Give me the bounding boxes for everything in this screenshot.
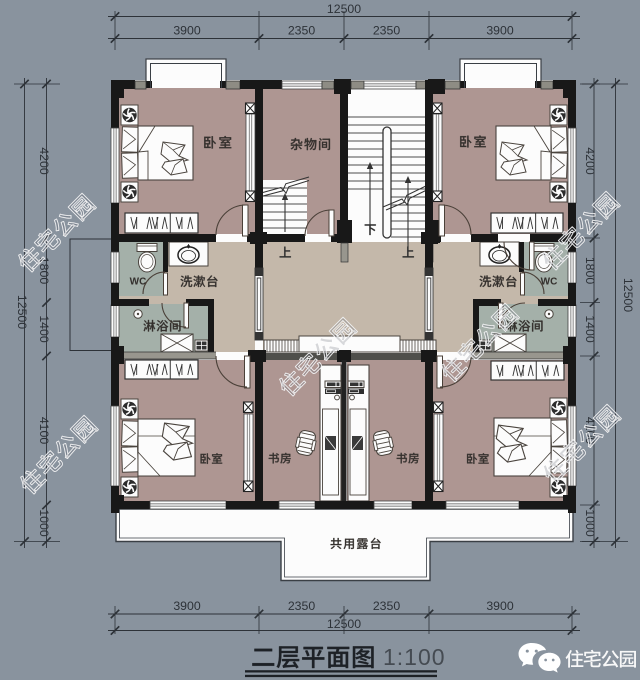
svg-text:1400: 1400 bbox=[37, 315, 51, 343]
svg-text:WC: WC bbox=[130, 277, 147, 288]
svg-text:2350: 2350 bbox=[288, 24, 316, 38]
svg-text:WC: WC bbox=[541, 277, 558, 288]
svg-text:4200: 4200 bbox=[583, 147, 597, 175]
svg-text:12500: 12500 bbox=[327, 2, 361, 16]
svg-text:1000: 1000 bbox=[37, 509, 51, 537]
svg-text:3900: 3900 bbox=[173, 24, 201, 38]
svg-text:2350: 2350 bbox=[373, 599, 401, 613]
svg-text:2350: 2350 bbox=[288, 599, 316, 613]
svg-text:1400: 1400 bbox=[583, 315, 597, 343]
svg-text:3900: 3900 bbox=[486, 24, 514, 38]
svg-text:1:100: 1:100 bbox=[383, 644, 446, 670]
svg-text:12500: 12500 bbox=[15, 295, 29, 329]
svg-text:1800: 1800 bbox=[583, 257, 597, 285]
svg-text:12500: 12500 bbox=[621, 278, 635, 312]
svg-text:12500: 12500 bbox=[327, 617, 361, 631]
svg-text:4100: 4100 bbox=[37, 417, 51, 445]
svg-text:4200: 4200 bbox=[37, 147, 51, 175]
svg-text:2350: 2350 bbox=[373, 24, 401, 38]
svg-text:3900: 3900 bbox=[173, 599, 201, 613]
svg-text:1000: 1000 bbox=[583, 509, 597, 537]
svg-text:3900: 3900 bbox=[486, 599, 514, 613]
